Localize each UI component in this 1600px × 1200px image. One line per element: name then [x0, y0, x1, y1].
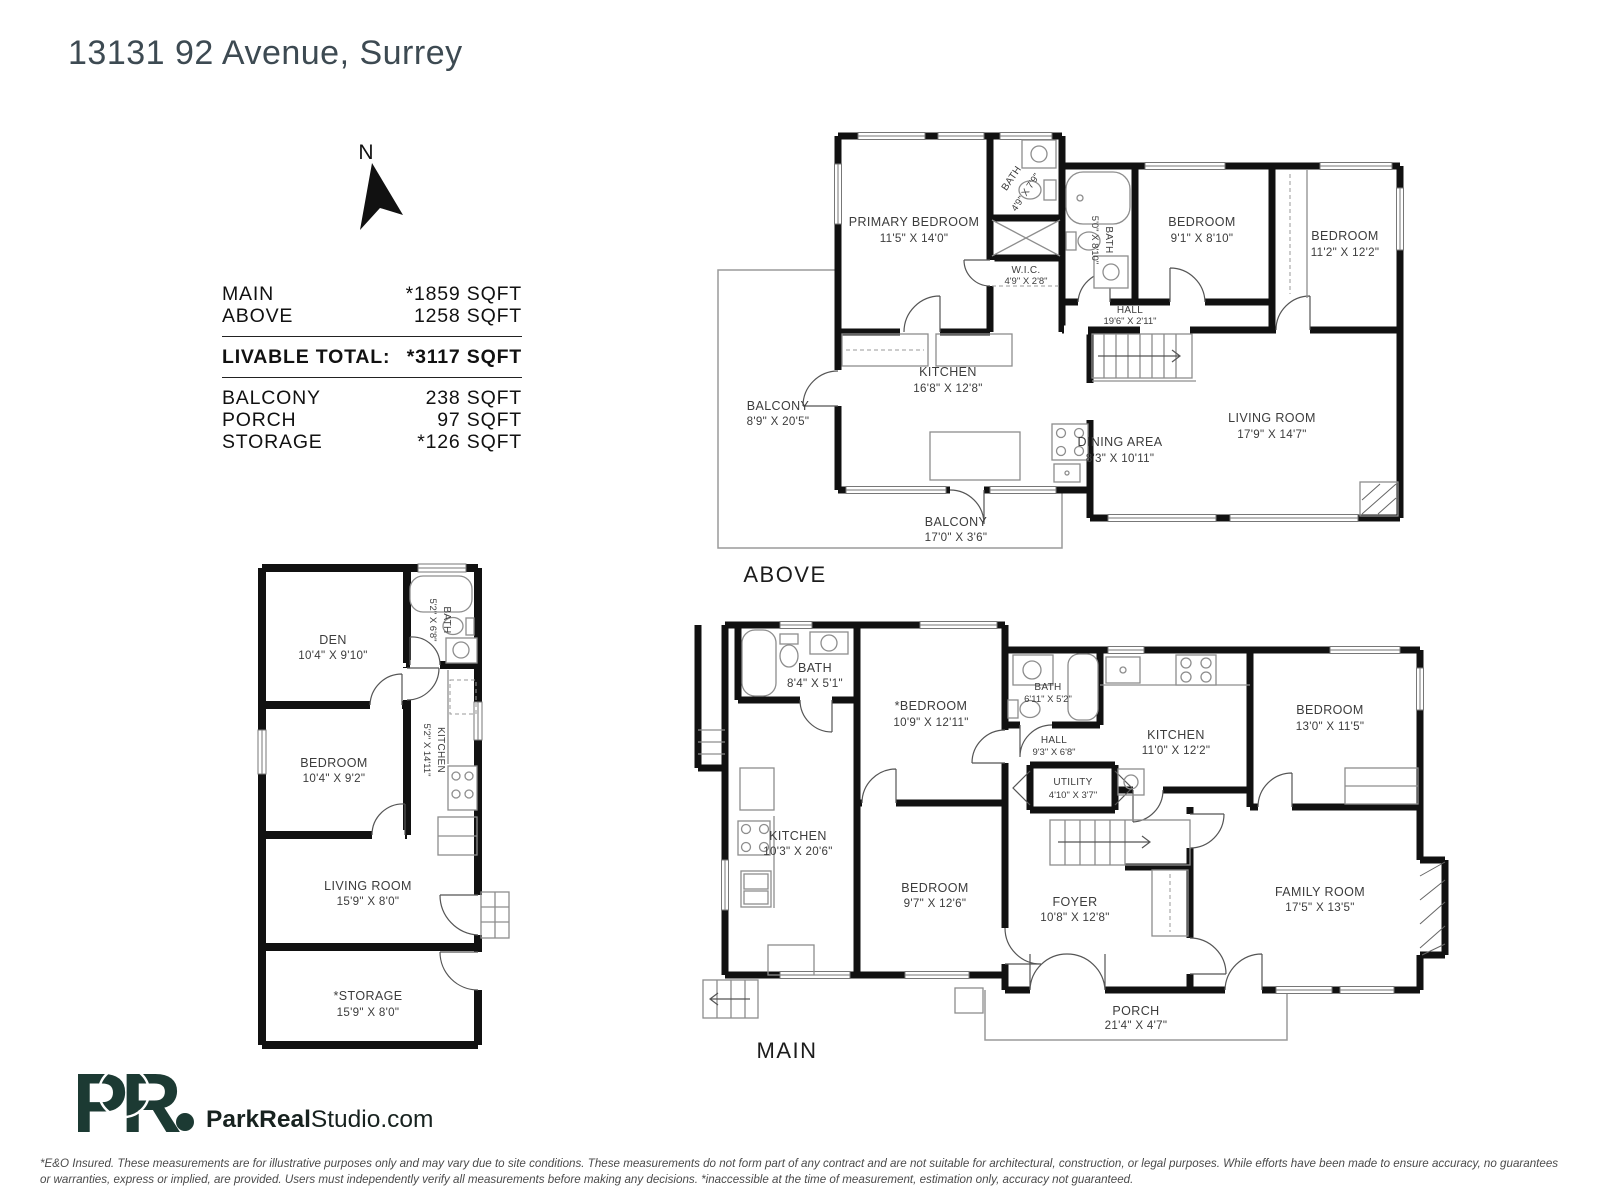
- fireplace: [1360, 482, 1398, 516]
- room-name: FAMILY ROOM: [1275, 885, 1365, 899]
- room-dims: 10'4" X 9'2": [303, 772, 366, 785]
- room-dims: 11'2" X 12'2": [1311, 246, 1380, 259]
- property-address: 13131 92 Avenue, Surrey: [68, 34, 463, 73]
- room-dims: 4'9" X 2'8": [1004, 276, 1047, 287]
- room-name: W.I.C.: [1011, 265, 1040, 276]
- area-row-porch: PORCH 97 SQFT: [222, 409, 522, 431]
- north-arrow-glyph: [360, 163, 403, 230]
- room-name: BATH: [1103, 226, 1114, 253]
- website-regular: Studio.com: [311, 1106, 434, 1133]
- pr-monogram-icon: PR: [78, 1056, 198, 1148]
- area-label: STORAGE: [222, 431, 323, 453]
- room-name: BEDROOM: [300, 756, 367, 770]
- landing: [955, 988, 983, 1013]
- room-name: KITCHEN: [1147, 728, 1205, 742]
- room-dims: 10'3" X 20'6": [763, 845, 832, 858]
- room-dims: 5'0" X 8'10": [1089, 216, 1100, 264]
- room-dims: 10'4" X 9'10": [298, 649, 367, 662]
- room-dims: 9'3" X 6'8": [1032, 747, 1075, 758]
- room-dims: 10'8" X 12'8": [1040, 911, 1109, 924]
- north-label: N: [358, 141, 373, 164]
- room-dims: 5'2" X 14'11": [421, 724, 432, 777]
- disclaimer-text: *E&O Insured. These measurements are for…: [40, 1156, 1562, 1187]
- room-name: KITCHEN: [769, 829, 827, 843]
- accessory-floor-plan: DEN 10'4" X 9'10" BATH 5'2" X 6'8" KITCH…: [250, 550, 515, 1050]
- room-dims: 6'11" X 5'2": [1024, 694, 1072, 705]
- room-name: PORCH: [1112, 1004, 1159, 1018]
- room-name: BATH: [1034, 682, 1061, 693]
- room-name: LIVING ROOM: [1228, 411, 1316, 425]
- area-row-balcony: BALCONY 238 SQFT: [222, 387, 522, 409]
- monogram-text: PR: [78, 1056, 180, 1148]
- room-dims: 13'0" X 11'5": [1296, 720, 1365, 733]
- room-dims: 17'0" X 3'6": [925, 531, 988, 544]
- fireplace: [1420, 862, 1445, 955]
- room-name: FOYER: [1052, 895, 1097, 909]
- room-dims: 8'3" X 10'11": [1086, 452, 1155, 465]
- divider: [222, 377, 522, 378]
- room-name: BALCONY: [747, 399, 810, 413]
- above-floor-plan: PRIMARY BEDROOM 11'5" X 14'0" BATH 4'9" …: [700, 128, 1420, 568]
- side-stairs: [698, 730, 725, 754]
- area-row-main: MAIN *1859 SQFT: [222, 283, 522, 305]
- area-value: 97 SQFT: [437, 409, 522, 431]
- stairs: [1092, 334, 1196, 381]
- room-name: PRIMARY BEDROOM: [849, 215, 980, 229]
- room-name: *STORAGE: [334, 989, 403, 1003]
- room-name: KITCHEN: [919, 365, 977, 379]
- area-row-total: LIVABLE TOTAL: *3117 SQFT: [222, 346, 522, 368]
- room-name: BATH: [798, 661, 832, 675]
- website-text: ParkRealStudio.com: [198, 1106, 433, 1148]
- room-dims: 8'4" X 5'1": [787, 677, 843, 690]
- room-name: DEN: [319, 633, 347, 647]
- area-label: BALCONY: [222, 387, 321, 409]
- area-summary-table: MAIN *1859 SQFT ABOVE 1258 SQFT LIVABLE …: [222, 283, 522, 453]
- area-row-above: ABOVE 1258 SQFT: [222, 305, 522, 327]
- room-dims: 15'9" X 8'0": [337, 895, 400, 908]
- room-name: UTILITY: [1053, 777, 1092, 788]
- stove: [1052, 424, 1088, 482]
- room-name: BATH: [441, 606, 452, 633]
- room-name: KITCHEN: [435, 727, 446, 773]
- area-label: LIVABLE TOTAL:: [222, 346, 390, 368]
- room-name: HALL: [1041, 735, 1067, 746]
- door-swings: [370, 637, 478, 990]
- room-dims: 5'2" X 6'8": [427, 598, 438, 641]
- north-arrow: N: [340, 135, 430, 245]
- room-dims: 4'10" X 3'7": [1049, 790, 1097, 801]
- area-value: *3117 SQFT: [407, 346, 522, 368]
- room-name: HALL: [1117, 305, 1143, 316]
- main-plan-caption: MAIN: [692, 1038, 882, 1064]
- room-dims: 10'9" X 12'11": [893, 716, 968, 729]
- brand-logo: PR ParkRealStudio.com: [78, 1056, 433, 1148]
- kitchen-counters: [842, 334, 1012, 366]
- room-dims: 15'9" X 8'0": [337, 1006, 400, 1019]
- area-value: 238 SQFT: [426, 387, 522, 409]
- area-value: *126 SQFT: [417, 431, 522, 453]
- room-name: *BEDROOM: [895, 699, 968, 713]
- main-floor-plan: BATH 8'4" X 5'1" *BEDROOM 10'9" X 12'11"…: [680, 608, 1460, 1053]
- website-bold: ParkReal: [206, 1106, 311, 1133]
- area-label: ABOVE: [222, 305, 293, 327]
- exterior-steps: [703, 980, 758, 1018]
- kitchen-fixtures: [448, 670, 477, 810]
- area-label: PORCH: [222, 409, 296, 431]
- monogram-dot: [176, 1113, 194, 1131]
- kitchen-island: [930, 432, 1020, 480]
- room-dims: 11'5" X 14'0": [880, 232, 949, 245]
- room-dims: 19'6" X 2'11": [1104, 316, 1157, 327]
- room-dims: 8'9" X 20'5": [747, 415, 810, 428]
- room-name: DINING AREA: [1078, 435, 1163, 449]
- area-value: *1859 SQFT: [406, 283, 522, 305]
- area-row-storage: STORAGE *126 SQFT: [222, 431, 522, 453]
- floorplan-page: 13131 92 Avenue, Surrey N MAIN *1859 SQF…: [0, 0, 1600, 1200]
- door-gaps: [370, 660, 483, 990]
- area-label: MAIN: [222, 283, 274, 305]
- room-dims: 21'4" X 4'7": [1105, 1019, 1168, 1032]
- room-name: BEDROOM: [1311, 229, 1378, 243]
- room-name: BALCONY: [925, 515, 988, 529]
- room-dims: 9'7" X 12'6": [904, 897, 967, 910]
- room-name: BEDROOM: [1168, 215, 1235, 229]
- room-name: LIVING ROOM: [324, 879, 412, 893]
- room-dims: 9'1" X 8'10": [1171, 232, 1234, 245]
- area-value: 1258 SQFT: [414, 305, 522, 327]
- above-plan-caption: ABOVE: [690, 562, 880, 588]
- divider: [222, 336, 522, 337]
- room-name: BEDROOM: [901, 881, 968, 895]
- room-dims: 11'0" X 12'2": [1142, 744, 1211, 757]
- room-dims: 17'5" X 13'5": [1285, 901, 1354, 914]
- room-dims: 16'8" X 12'8": [913, 382, 982, 395]
- room-name: BEDROOM: [1296, 703, 1363, 717]
- stairs: [1050, 820, 1190, 865]
- room-dims: 17'9" X 14'7": [1237, 428, 1306, 441]
